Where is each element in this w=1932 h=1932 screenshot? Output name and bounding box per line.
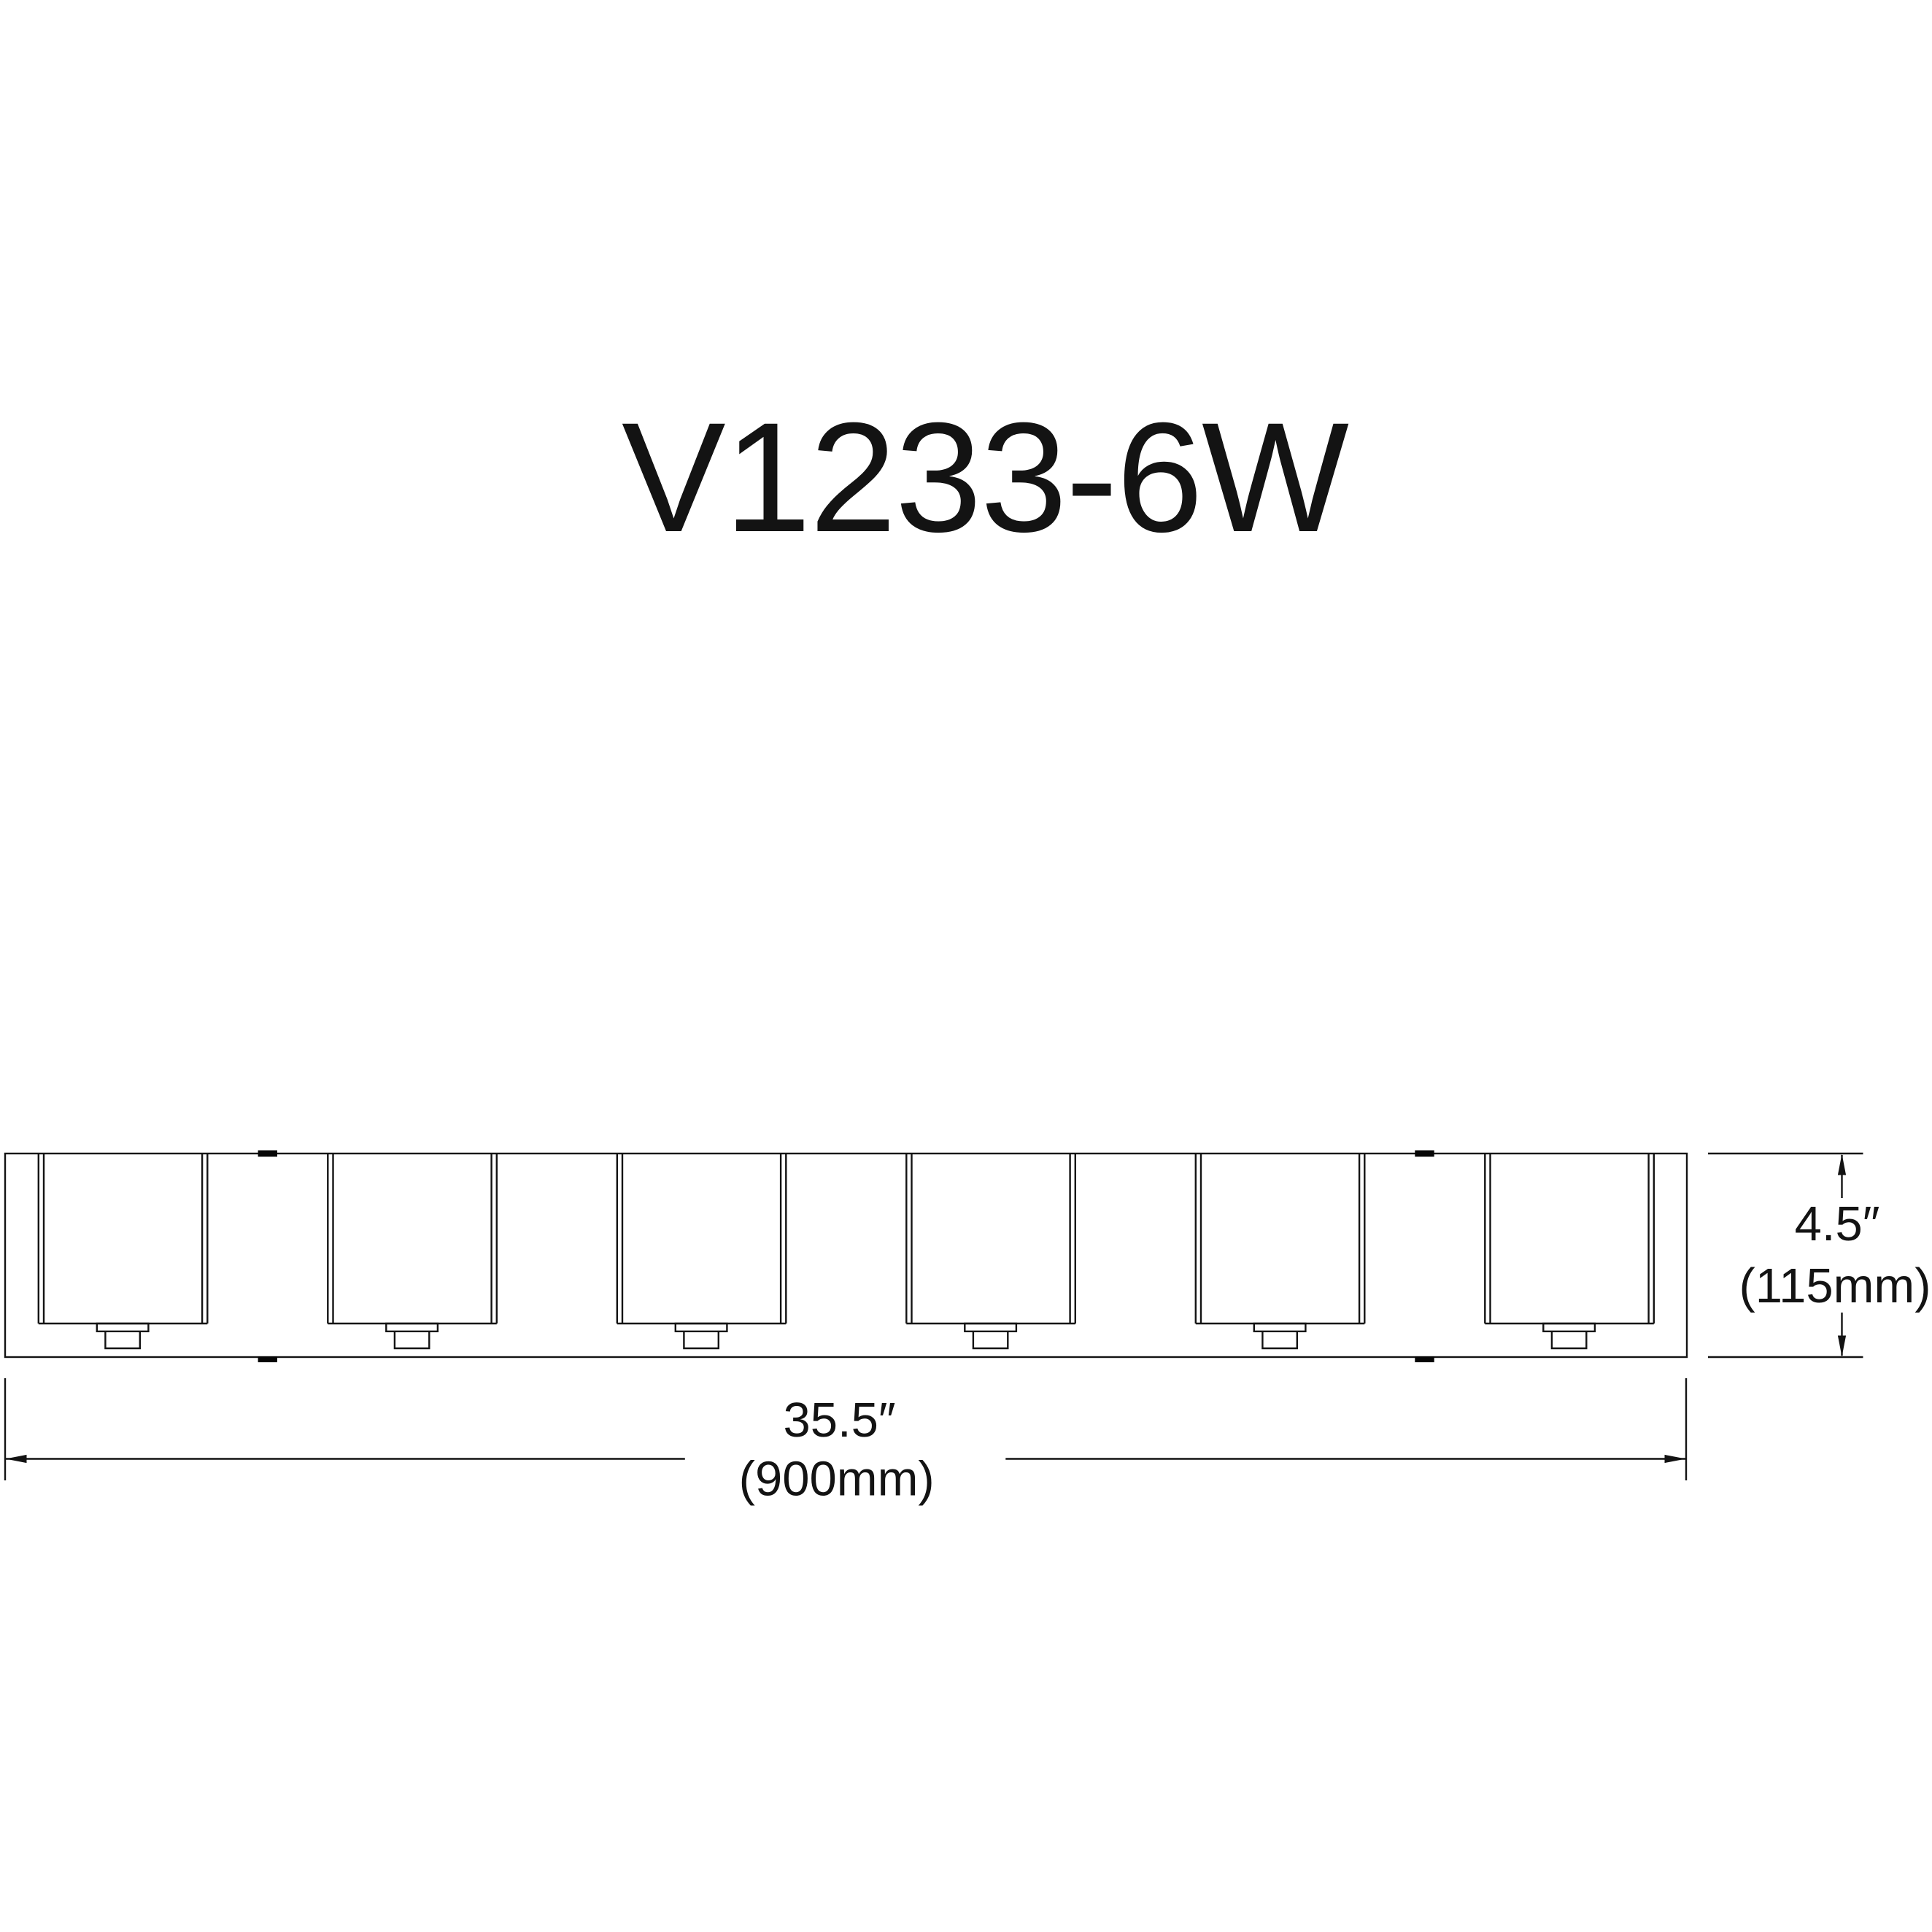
svg-text:35.5″: 35.5″	[783, 1393, 895, 1448]
svg-text:4.5″: 4.5″	[1795, 1197, 1880, 1251]
svg-text:V1233-6W: V1233-6W	[622, 390, 1349, 565]
svg-text:(115mm): (115mm)	[1739, 1259, 1931, 1313]
svg-text:(900mm): (900mm)	[739, 1452, 935, 1507]
